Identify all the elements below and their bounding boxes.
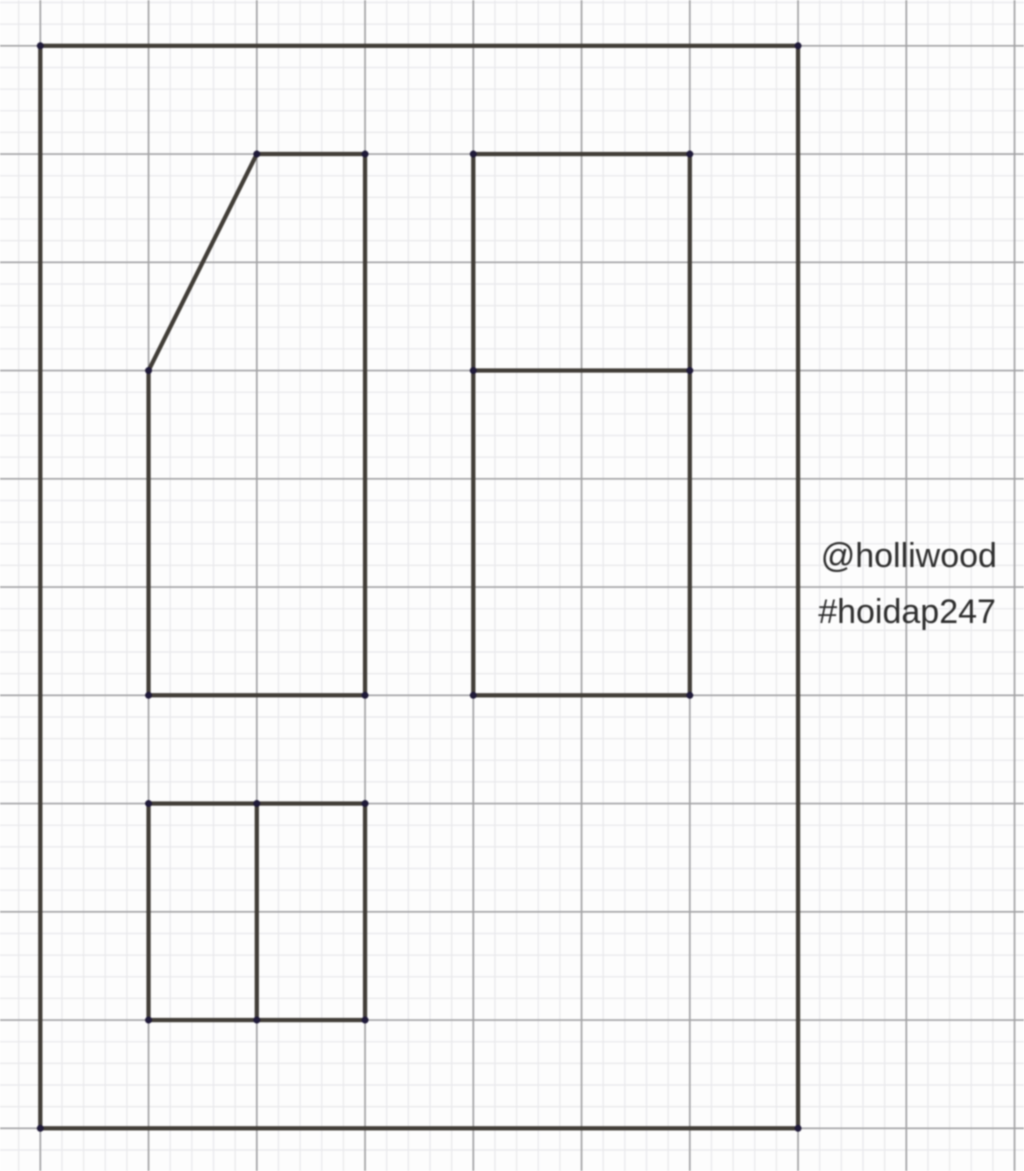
svg-text:@holliwood: @holliwood bbox=[821, 537, 997, 575]
svg-text:#hoidap247: #hoidap247 bbox=[818, 593, 996, 631]
